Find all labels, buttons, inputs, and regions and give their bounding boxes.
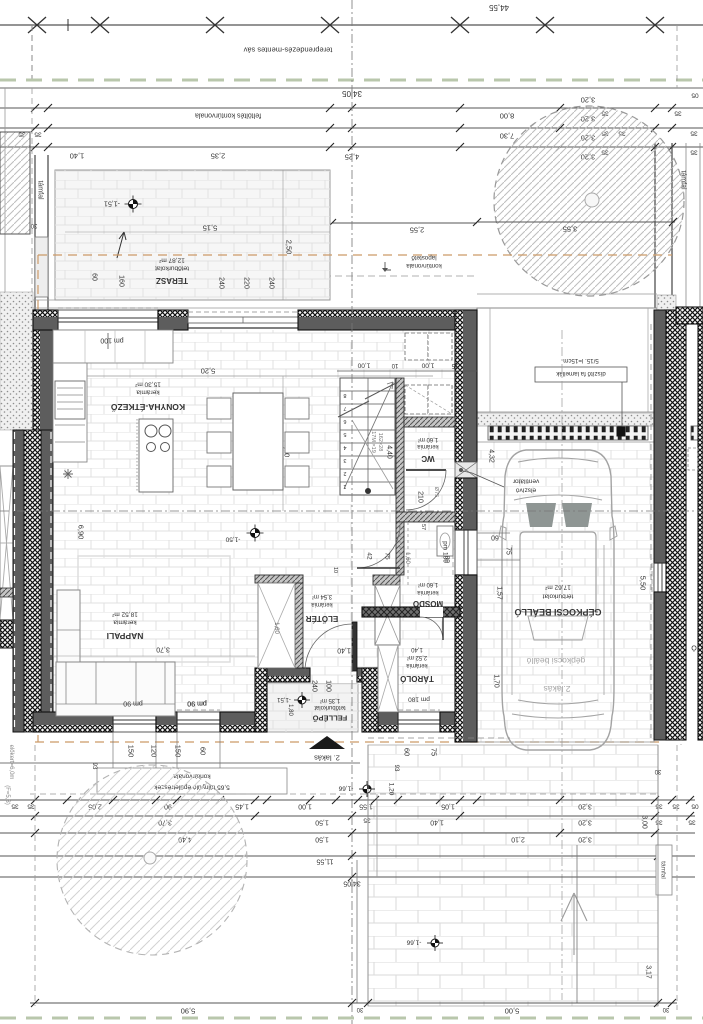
svg-text:feltöltés kontúrvonala: feltöltés kontúrvonala <box>195 112 261 119</box>
svg-text:1,55: 1,55 <box>359 803 373 810</box>
svg-text:44,55: 44,55 <box>488 3 509 12</box>
svg-text:TÁROLÓ: TÁROLÓ <box>400 674 434 683</box>
svg-text:162×28: 162×28 <box>377 433 383 452</box>
svg-text:1,00: 1,00 <box>298 803 312 810</box>
svg-text:35: 35 <box>655 819 663 826</box>
svg-text:210: 210 <box>417 491 424 503</box>
svg-text:1,00: 1,00 <box>357 362 370 369</box>
svg-text:7,30: 7,30 <box>500 131 515 140</box>
svg-text:10: 10 <box>391 362 398 368</box>
svg-text:1,57: 1,57 <box>496 586 503 600</box>
svg-text:35: 35 <box>688 819 696 826</box>
svg-text:34|05: 34|05 <box>343 880 360 887</box>
svg-text:8: 8 <box>343 392 346 398</box>
svg-text:35: 35 <box>34 131 42 138</box>
svg-text:tetőburkolat: tetőburkolat <box>314 704 346 710</box>
svg-text:Ó: Ó <box>691 644 697 653</box>
svg-text:1,40: 1,40 <box>70 151 85 160</box>
svg-text:3,17: 3,17 <box>645 965 652 979</box>
svg-text:1,00: 1,00 <box>421 362 434 369</box>
svg-text:4: 4 <box>343 444 346 450</box>
svg-text:3,70: 3,70 <box>156 646 170 653</box>
svg-text:2,10: 2,10 <box>511 836 525 843</box>
svg-text:57: 57 <box>420 524 426 530</box>
svg-text:gépkocsi beálló: gépkocsi beálló <box>526 656 585 666</box>
svg-text:1,40: 1,40 <box>430 819 444 826</box>
svg-text:MOSDÓ: MOSDÓ <box>413 599 443 608</box>
svg-text:GÉPKOCSI BEÁLLÓ: GÉPKOCSI BEÁLLÓ <box>514 607 601 618</box>
svg-text:10: 10 <box>332 567 338 573</box>
svg-text:75: 75 <box>429 748 438 756</box>
svg-text:75: 75 <box>505 547 512 555</box>
svg-text:kontúrvonala: kontúrvonala <box>406 262 442 269</box>
svg-text:pm 180: pm 180 <box>442 541 449 563</box>
svg-text:ventilátor: ventilátor <box>512 478 539 485</box>
svg-text:1,35 m²: 1,35 m² <box>320 697 340 703</box>
svg-text:35: 35 <box>690 149 698 156</box>
svg-text:kerámia: kerámia <box>417 589 439 595</box>
svg-text:tereprendezés-mentes sáv: tereprendezés-mentes sáv <box>243 45 332 54</box>
svg-text:3,20: 3,20 <box>578 819 592 826</box>
svg-text:2: 2 <box>343 470 346 476</box>
svg-text:-1,66: -1,66 <box>338 785 353 792</box>
svg-text:5,50: 5,50 <box>638 576 647 591</box>
svg-text:tetőburkolat: tetőburkolat <box>155 265 189 272</box>
svg-text:5,90: 5,90 <box>181 1006 196 1015</box>
svg-text:Ø75: Ø75 <box>433 487 439 497</box>
svg-text:7: 7 <box>343 405 346 411</box>
svg-text:4,32: 4,32 <box>488 449 495 463</box>
svg-text:pm 90: pm 90 <box>123 700 143 707</box>
svg-text:240: 240 <box>311 680 318 692</box>
svg-text:240: 240 <box>218 277 225 289</box>
svg-text:5/15. l=15cm: 5/15. l=15cm <box>563 357 599 364</box>
svg-text:30: 30 <box>356 1006 363 1012</box>
svg-text:-1,51: -1,51 <box>277 696 291 702</box>
svg-text:2,50: 2,50 <box>284 240 293 255</box>
svg-text:pm 90: pm 90 <box>187 700 207 707</box>
svg-text:3,20: 3,20 <box>581 95 596 104</box>
svg-text:35: 35 <box>674 110 682 117</box>
svg-text:pm 100: pm 100 <box>100 337 123 344</box>
svg-text:ELŐTÉR: ELŐTÉR <box>306 614 339 623</box>
svg-text:kerámia: kerámia <box>311 601 333 607</box>
svg-text:93: 93 <box>393 765 399 772</box>
svg-text:120: 120 <box>149 745 158 758</box>
svg-text:FELLÉPŐ: FELLÉPŐ <box>313 713 348 722</box>
svg-text:1,60: 1,60 <box>273 622 279 634</box>
svg-text:1,60 m²: 1,60 m² <box>418 436 438 442</box>
svg-text:2,55: 2,55 <box>410 225 425 234</box>
svg-text:1,80: 1,80 <box>287 704 293 716</box>
svg-text:150: 150 <box>126 745 135 758</box>
svg-text:17M ×19: 17M ×19 <box>370 431 376 453</box>
svg-text:1,50: 1,50 <box>315 836 329 843</box>
svg-text:1,05: 1,05 <box>441 803 455 810</box>
svg-text:35: 35 <box>655 803 663 810</box>
svg-text:35: 35 <box>363 817 371 824</box>
svg-text:-1,51: -1,51 <box>104 200 120 207</box>
svg-text:42: 42 <box>366 552 373 560</box>
svg-text:1: 1 <box>343 483 346 489</box>
svg-text:kerámia: kerámia <box>406 662 428 668</box>
svg-text:2.lakás: 2.lakás <box>544 684 571 694</box>
svg-text:150: 150 <box>173 745 182 758</box>
svg-text:240: 240 <box>268 277 275 289</box>
svg-text:5,00: 5,00 <box>505 1006 520 1015</box>
svg-text:3,20: 3,20 <box>578 803 592 810</box>
svg-text:220: 220 <box>243 277 250 289</box>
svg-text:4,40: 4,40 <box>386 445 393 459</box>
svg-text:6,90: 6,90 <box>76 525 85 540</box>
svg-text:35: 35 <box>27 803 35 810</box>
svg-text:35: 35 <box>690 130 698 137</box>
svg-text:60: 60 <box>491 534 499 541</box>
svg-text:18,52 m²: 18,52 m² <box>111 611 137 618</box>
svg-text:támfal: támfal <box>660 861 667 879</box>
svg-text:előkert=6,0m: előkert=6,0m <box>8 745 14 780</box>
svg-text:elszívó: elszívó <box>516 487 537 494</box>
svg-text:térburkolat: térburkolat <box>542 593 573 600</box>
svg-text:1,50: 1,50 <box>315 819 329 826</box>
svg-text:8,00: 8,00 <box>500 111 515 120</box>
svg-text:30: 30 <box>662 1006 669 1012</box>
svg-text:60: 60 <box>198 747 207 755</box>
svg-text:5: 5 <box>343 431 346 437</box>
svg-text:15: 15 <box>451 362 458 368</box>
svg-text:5,15: 5,15 <box>203 223 218 232</box>
svg-text:3: 3 <box>343 457 346 463</box>
svg-text:3,20: 3,20 <box>578 836 592 843</box>
svg-text:30: 30 <box>30 222 37 228</box>
svg-text:1,45: 1,45 <box>235 803 249 810</box>
svg-text:1,40: 1,40 <box>337 647 351 654</box>
svg-text:6: 6 <box>343 418 346 424</box>
svg-text:60: 60 <box>402 748 411 756</box>
svg-text:-1,66: -1,66 <box>406 939 421 946</box>
svg-text:160: 160 <box>118 275 125 287</box>
svg-text:100: 100 <box>325 680 332 692</box>
svg-text:15,30 m²: 15,30 m² <box>134 381 160 388</box>
svg-text:1,40: 1,40 <box>411 646 423 652</box>
svg-text:17,62 m²: 17,62 m² <box>544 584 570 591</box>
svg-text:12,87 m²: 12,87 m² <box>158 257 184 264</box>
svg-text:KONYHA-ÉTKEZŐ: KONYHA-ÉTKEZŐ <box>111 402 186 413</box>
svg-text:NAPPALI: NAPPALI <box>107 631 144 641</box>
svg-text:kerámia: kerámia <box>417 443 439 449</box>
svg-text:(F=5,3): (F=5,3) <box>4 785 10 805</box>
svg-text:5,20: 5,20 <box>201 366 216 375</box>
svg-text:2,35: 2,35 <box>211 151 226 160</box>
svg-text:pm 180: pm 180 <box>408 696 430 703</box>
svg-text:WC: WC <box>421 454 435 463</box>
svg-text:35: 35 <box>11 803 19 810</box>
svg-text:támfal: támfal <box>37 180 44 200</box>
svg-text:1,70: 1,70 <box>493 674 500 688</box>
svg-text:3,00: 3,00 <box>641 815 648 829</box>
svg-text:93: 93 <box>91 763 97 770</box>
svg-text:75: 75 <box>384 552 391 560</box>
svg-text:1,60 m²: 1,60 m² <box>418 581 438 587</box>
svg-text:2. lakás: 2. lakás <box>314 753 340 762</box>
svg-text:TERASZ: TERASZ <box>156 276 188 285</box>
svg-text:05: 05 <box>691 92 699 99</box>
svg-text:11,55: 11,55 <box>316 858 333 865</box>
svg-text:kerámia: kerámia <box>113 619 137 626</box>
svg-text:05: 05 <box>691 803 699 810</box>
svg-text:60: 60 <box>91 273 98 281</box>
svg-text:díszítő fa lamellák: díszítő fa lamellák <box>555 370 605 377</box>
svg-text:2,52 m²: 2,52 m² <box>407 654 427 660</box>
svg-text:-1,50: -1,50 <box>225 536 240 543</box>
svg-text:1,60: 1,60 <box>404 552 410 564</box>
svg-text:35: 35 <box>672 803 680 810</box>
svg-text:3,54 m²: 3,54 m² <box>312 593 332 599</box>
svg-text:3,55: 3,55 <box>563 224 578 233</box>
svg-text:lapostető: lapostető <box>411 254 437 261</box>
svg-text:kerámia: kerámia <box>136 389 160 396</box>
